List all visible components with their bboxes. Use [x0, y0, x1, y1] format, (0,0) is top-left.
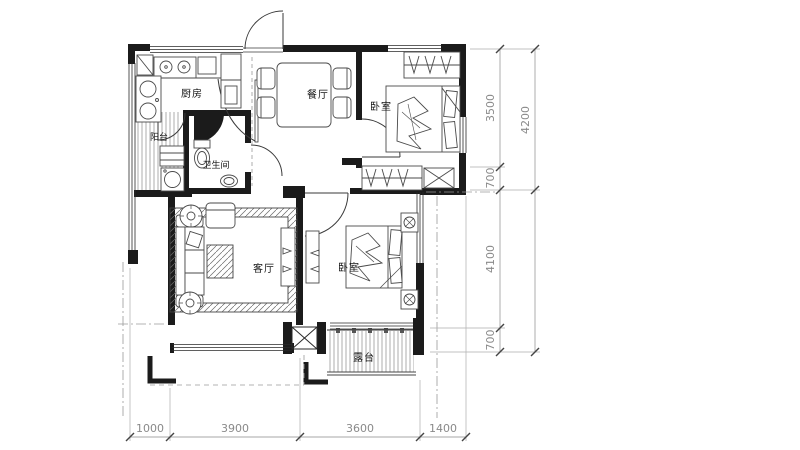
wardrobe-icon — [404, 52, 460, 78]
dim-bottom-1000: 1000 — [136, 422, 164, 435]
living-furniture — [170, 203, 297, 314]
dining-chair-icon — [257, 68, 275, 89]
dim-bottom-3900: 3900 — [221, 422, 249, 435]
duct-shaft-icon — [424, 168, 454, 188]
dim-right-3500: 3500 — [484, 94, 497, 122]
room-label-terrace: 露台 — [353, 351, 375, 364]
wardrobe-icon — [362, 166, 422, 190]
window-bedroom-top — [388, 46, 441, 52]
bed-icon — [346, 226, 402, 288]
floor-plan-canvas: 1000 3900 3600 1400 3500 700 4100 700 42… — [0, 0, 800, 450]
side-table-icon — [179, 292, 201, 314]
dim-bottom-3600: 3600 — [346, 422, 374, 435]
room-label-bedroom-right: 卧室 — [338, 261, 360, 274]
bedroom-right-door-swing-icon — [305, 193, 348, 236]
kitchen-sink-icon — [136, 76, 161, 122]
counter-appliance-icon — [198, 57, 216, 74]
dining-chair-icon — [257, 97, 275, 118]
dining-chair-icon — [333, 68, 351, 89]
nightstand-icon — [401, 213, 418, 232]
bathroom-hall-door-swing-icon — [251, 145, 282, 176]
shelf-icon — [160, 146, 184, 166]
flue-shaft-icon — [292, 327, 317, 349]
bedroom-right-furniture — [306, 213, 418, 309]
coffee-table-icon — [207, 245, 233, 278]
dim-bottom-1400: 1400 — [429, 422, 457, 435]
bedroom-top-furniture — [386, 52, 460, 152]
room-label-kitchen: 厨房 — [181, 87, 203, 100]
armchair-icon — [206, 203, 235, 228]
bay-corner-marks — [150, 356, 328, 382]
room-label-bedroom-top: 卧室 — [370, 100, 392, 113]
room-label-bathroom: 卫生间 — [202, 159, 229, 171]
dining-furniture — [257, 63, 351, 127]
floor-plan-drawing: 1000 3900 3600 1400 3500 700 4100 700 42… — [0, 0, 800, 450]
room-label-balcony: 阳台 — [150, 131, 168, 143]
washing-machine-icon — [161, 168, 184, 191]
side-table-icon — [180, 205, 202, 227]
entry-door-swing-icon — [243, 11, 283, 52]
room-label-living: 客厅 — [253, 262, 275, 275]
nightstand-icon — [401, 290, 418, 309]
bed-icon — [386, 86, 460, 152]
balcony-glazing-left — [129, 63, 135, 250]
window-bedroom-top-right — [460, 117, 466, 153]
dim-right-4100: 4100 — [484, 245, 497, 273]
room-label-dining: 餐厅 — [307, 88, 329, 101]
bathroom-door-fan-icon — [194, 113, 224, 143]
dining-chair-icon — [333, 97, 351, 118]
dim-right-4200: 4200 — [519, 106, 532, 134]
bay-window-living — [172, 345, 292, 351]
wash-basin-icon — [221, 175, 238, 187]
balcony-fixtures — [160, 146, 184, 191]
tv-cabinet-icon — [281, 228, 295, 286]
hall-closet-band — [362, 166, 454, 190]
window-kitchen-top — [150, 47, 243, 53]
dim-right-700b: 700 — [484, 330, 497, 351]
terrace-floor-hatch — [327, 328, 418, 375]
stove-icon — [154, 57, 196, 78]
dim-right-700a: 700 — [484, 168, 497, 189]
dresser-icon — [306, 231, 319, 283]
kitchen-cabinet-icon — [221, 54, 241, 108]
